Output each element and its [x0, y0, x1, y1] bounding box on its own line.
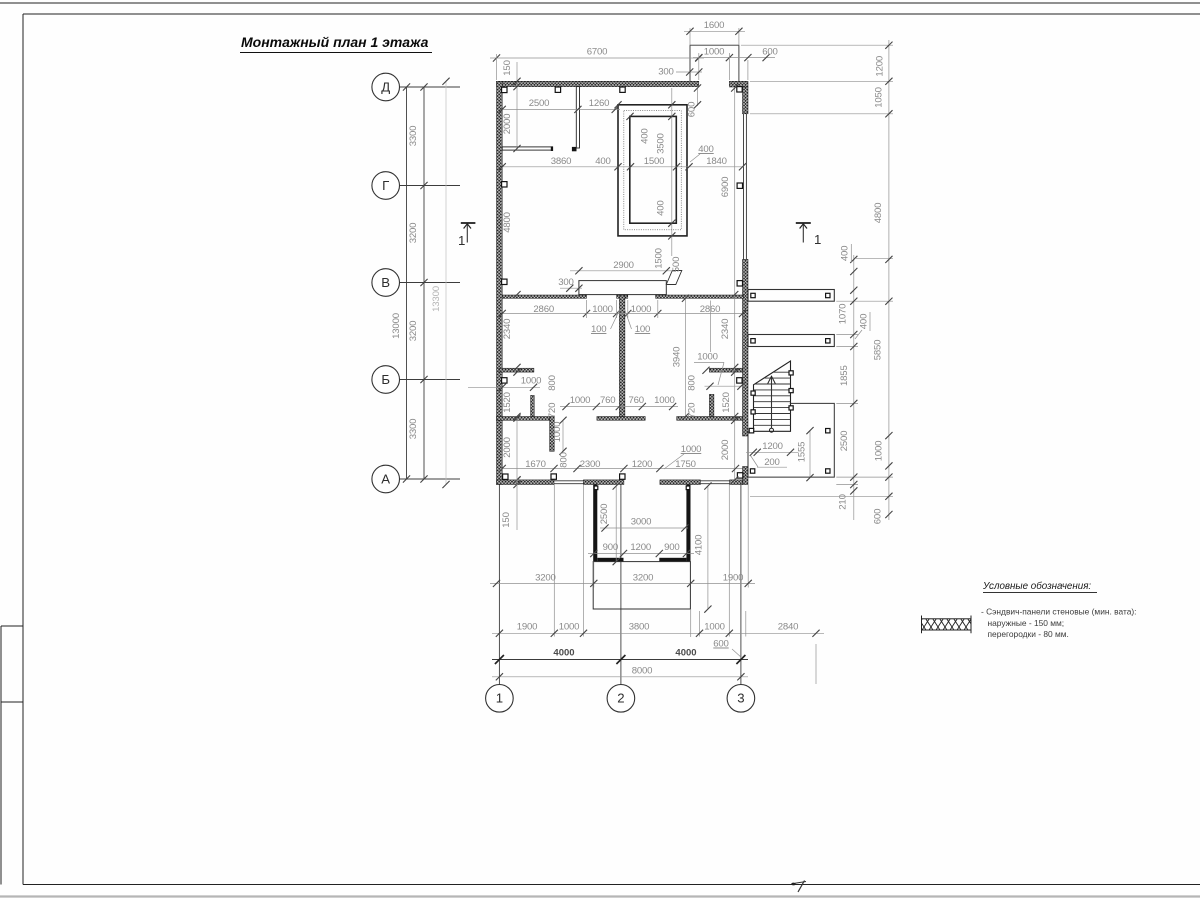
svg-text:3200: 3200: [633, 573, 654, 584]
svg-text:2500: 2500: [529, 98, 550, 109]
svg-text:1000: 1000: [552, 422, 563, 443]
svg-text:1750: 1750: [675, 459, 696, 470]
svg-text:300: 300: [558, 277, 573, 288]
svg-text:1200: 1200: [875, 56, 886, 77]
svg-text:2340: 2340: [502, 319, 513, 340]
svg-text:1000: 1000: [681, 444, 702, 455]
svg-text:Условные обозначения:: Условные обозначения:: [982, 581, 1091, 592]
svg-text:3200: 3200: [408, 223, 419, 244]
svg-text:2500: 2500: [839, 431, 850, 452]
svg-text:8000: 8000: [632, 666, 653, 677]
svg-text:3800: 3800: [629, 622, 650, 633]
svg-text:3940: 3940: [672, 347, 683, 368]
svg-text:1520: 1520: [502, 392, 513, 413]
svg-text:1500: 1500: [644, 156, 665, 167]
svg-text:1840: 1840: [706, 156, 727, 167]
svg-text:3200: 3200: [408, 321, 419, 342]
svg-text:1000: 1000: [631, 304, 652, 315]
svg-text:760: 760: [628, 395, 643, 406]
svg-text:2000: 2000: [720, 440, 731, 461]
svg-text:100: 100: [591, 324, 606, 335]
svg-text:1: 1: [814, 232, 821, 247]
svg-text:2840: 2840: [778, 622, 799, 633]
svg-text:Г: Г: [382, 178, 389, 193]
svg-text:В: В: [381, 275, 390, 290]
svg-text:900: 900: [603, 542, 618, 553]
svg-text:150: 150: [501, 512, 512, 527]
svg-text:3500: 3500: [655, 133, 666, 154]
svg-text:1: 1: [458, 233, 465, 248]
svg-text:1000: 1000: [874, 441, 885, 462]
svg-text:760: 760: [600, 395, 615, 406]
svg-text:1000: 1000: [570, 395, 591, 406]
svg-text:2340: 2340: [720, 319, 731, 340]
svg-text:1000: 1000: [559, 622, 580, 633]
svg-text:2500: 2500: [599, 504, 610, 525]
svg-text:600: 600: [713, 639, 728, 650]
svg-text:4100: 4100: [693, 535, 704, 556]
svg-text:1070: 1070: [837, 304, 848, 325]
svg-text:720: 720: [687, 403, 698, 418]
svg-text:3300: 3300: [408, 419, 419, 440]
svg-text:- Сэндвич-панели стеновые (мин: - Сэндвич-панели стеновые (мин. вата):: [981, 607, 1137, 617]
svg-text:2860: 2860: [533, 304, 554, 315]
svg-text:1050: 1050: [873, 87, 884, 108]
svg-text:3000: 3000: [631, 517, 652, 528]
svg-text:1200: 1200: [630, 542, 651, 553]
svg-text:200: 200: [764, 457, 779, 468]
svg-text:1670: 1670: [525, 459, 546, 470]
svg-text:800: 800: [547, 375, 558, 390]
svg-text:400: 400: [655, 200, 666, 215]
svg-text:1000: 1000: [704, 47, 725, 58]
svg-text:600: 600: [762, 47, 777, 58]
svg-text:1000: 1000: [697, 352, 718, 363]
svg-text:6700: 6700: [587, 47, 608, 58]
svg-text:400: 400: [595, 156, 610, 167]
svg-text:2900: 2900: [613, 260, 634, 271]
svg-text:1900: 1900: [517, 622, 538, 633]
svg-text:перегородки - 80 мм.: перегородки - 80 мм.: [988, 629, 1069, 639]
svg-text:800: 800: [687, 375, 698, 390]
svg-text:1: 1: [496, 691, 503, 706]
svg-text:2300: 2300: [580, 459, 601, 470]
svg-text:1500: 1500: [654, 248, 665, 269]
svg-text:4800: 4800: [873, 203, 884, 224]
svg-text:1520: 1520: [721, 392, 732, 413]
svg-text:1600: 1600: [704, 20, 725, 31]
svg-text:210: 210: [838, 494, 849, 509]
svg-text:1000: 1000: [704, 622, 725, 633]
svg-text:500: 500: [671, 257, 682, 272]
svg-text:13000: 13000: [391, 313, 402, 339]
svg-text:3300: 3300: [408, 126, 419, 147]
svg-text:наружные - 150 мм;: наружные - 150 мм;: [988, 618, 1065, 628]
svg-text:2860: 2860: [700, 304, 721, 315]
svg-text:1855: 1855: [839, 365, 850, 386]
svg-text:400: 400: [639, 128, 650, 143]
svg-text:100: 100: [635, 324, 650, 335]
svg-text:1000: 1000: [654, 395, 675, 406]
svg-text:1200: 1200: [762, 441, 783, 452]
svg-text:1900: 1900: [723, 573, 744, 584]
svg-text:4000: 4000: [553, 648, 574, 659]
svg-text:400: 400: [698, 144, 713, 155]
svg-text:3860: 3860: [551, 156, 572, 167]
svg-text:Д: Д: [381, 79, 390, 94]
svg-text:4800: 4800: [502, 212, 513, 233]
svg-text:1555: 1555: [797, 442, 808, 463]
svg-text:900: 900: [664, 542, 679, 553]
svg-text:300: 300: [658, 67, 673, 78]
svg-text:13300: 13300: [431, 286, 442, 312]
svg-text:2000: 2000: [502, 114, 513, 135]
svg-text:1200: 1200: [632, 459, 653, 470]
svg-text:150: 150: [502, 60, 513, 75]
svg-text:1260: 1260: [589, 98, 610, 109]
svg-text:3200: 3200: [535, 573, 556, 584]
svg-text:4000: 4000: [675, 648, 696, 659]
svg-text:2: 2: [617, 691, 624, 706]
svg-text:2000: 2000: [502, 437, 513, 458]
svg-text:400: 400: [858, 314, 869, 329]
svg-text:1000: 1000: [592, 304, 613, 315]
svg-text:Б: Б: [381, 372, 390, 387]
svg-text:400: 400: [840, 246, 851, 261]
svg-text:5850: 5850: [873, 340, 884, 361]
svg-text:А: А: [381, 471, 390, 486]
svg-text:720: 720: [547, 403, 558, 418]
svg-text:800: 800: [558, 452, 569, 467]
svg-text:3: 3: [737, 691, 744, 706]
svg-text:1000: 1000: [521, 376, 542, 387]
svg-text:600: 600: [873, 509, 884, 524]
svg-text:6900: 6900: [720, 177, 731, 198]
svg-text:600: 600: [687, 102, 698, 117]
svg-text:Монтажный план 1 этажа: Монтажный план 1 этажа: [241, 34, 429, 50]
